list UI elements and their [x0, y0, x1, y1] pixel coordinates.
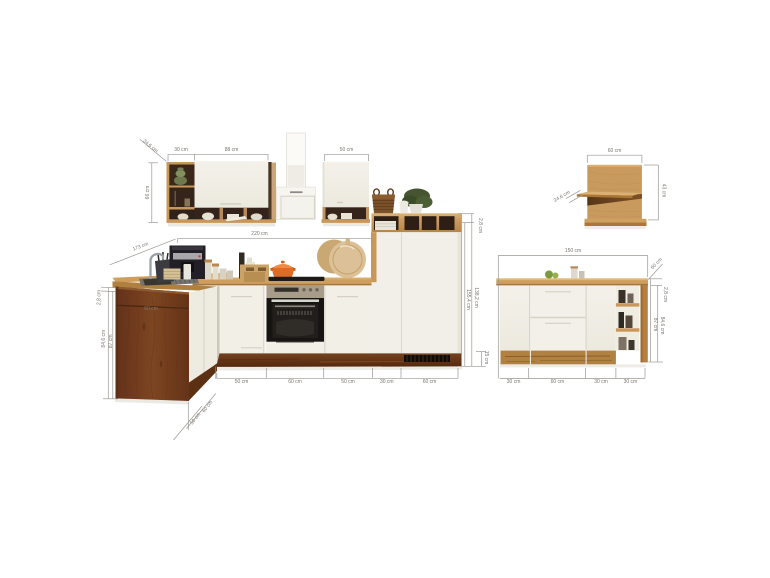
svg-text:30 cm: 30 cm	[380, 379, 394, 385]
svg-text:66 cm: 66 cm	[145, 186, 151, 200]
svg-text:50 cm: 50 cm	[340, 147, 354, 153]
svg-text:43 cm: 43 cm	[660, 184, 666, 198]
svg-text:150 cm: 150 cm	[565, 248, 581, 254]
svg-text:220 cm: 220 cm	[251, 231, 267, 237]
svg-text:138,2 cm: 138,2 cm	[473, 287, 479, 308]
svg-text:84,6 cm: 84,6 cm	[101, 330, 107, 348]
svg-text:50 cm: 50 cm	[235, 379, 249, 385]
svg-text:88 cm: 88 cm	[225, 147, 239, 153]
svg-text:60 cm: 60 cm	[423, 379, 437, 385]
svg-text:30 cm: 30 cm	[174, 147, 188, 153]
svg-text:87 cm: 87 cm	[652, 318, 658, 332]
svg-text:50 cm: 50 cm	[341, 379, 355, 385]
svg-text:2,8 cm: 2,8 cm	[662, 287, 668, 302]
svg-text:155,4 cm: 155,4 cm	[465, 289, 471, 310]
svg-text:84,6 cm: 84,6 cm	[659, 317, 665, 335]
svg-text:60 cm: 60 cm	[551, 379, 565, 385]
svg-text:60 cm: 60 cm	[608, 148, 622, 154]
svg-text:60 cm: 60 cm	[144, 306, 158, 312]
svg-text:60 cm: 60 cm	[288, 379, 302, 385]
svg-text:30 cm: 30 cm	[624, 379, 638, 385]
svg-text:2,8 cm: 2,8 cm	[477, 218, 483, 233]
svg-text:2,8 cm: 2,8 cm	[97, 290, 103, 305]
svg-text:30 cm: 30 cm	[507, 379, 521, 385]
svg-text:30 cm: 30 cm	[594, 379, 608, 385]
svg-text:87 cm: 87 cm	[108, 334, 114, 348]
svg-text:15 cm: 15 cm	[483, 351, 489, 365]
